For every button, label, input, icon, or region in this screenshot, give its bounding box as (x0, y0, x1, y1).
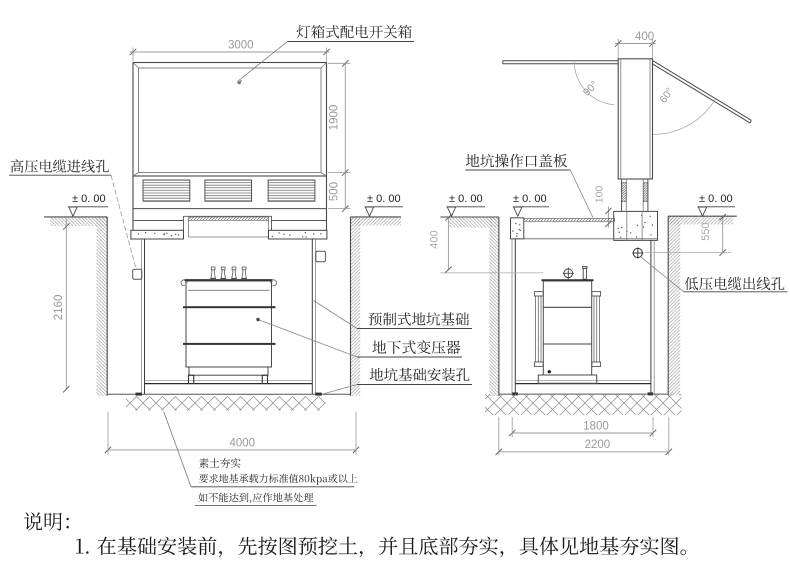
svg-text:1800: 1800 (583, 421, 609, 433)
svg-text:± 0. 00: ± 0. 00 (699, 193, 733, 205)
svg-text:400: 400 (429, 230, 441, 248)
svg-text:± 0. 00: ± 0. 00 (513, 193, 547, 205)
svg-text:4000: 4000 (230, 438, 256, 450)
svg-text:90°: 90° (581, 79, 601, 99)
svg-text:± 0. 00: ± 0. 00 (449, 193, 483, 205)
svg-text:550: 550 (700, 222, 712, 240)
svg-text:± 0. 00: ± 0. 00 (72, 193, 106, 205)
svg-text:2200: 2200 (585, 439, 611, 451)
svg-text:400: 400 (635, 31, 654, 43)
svg-text:± 0. 00: ± 0. 00 (367, 193, 401, 205)
svg-text:2160: 2160 (53, 295, 65, 321)
svg-text:100: 100 (594, 186, 606, 204)
svg-text:1900: 1900 (329, 105, 341, 131)
svg-text:3000: 3000 (228, 40, 254, 52)
svg-text:60°: 60° (657, 86, 676, 106)
svg-text:500: 500 (329, 182, 341, 201)
